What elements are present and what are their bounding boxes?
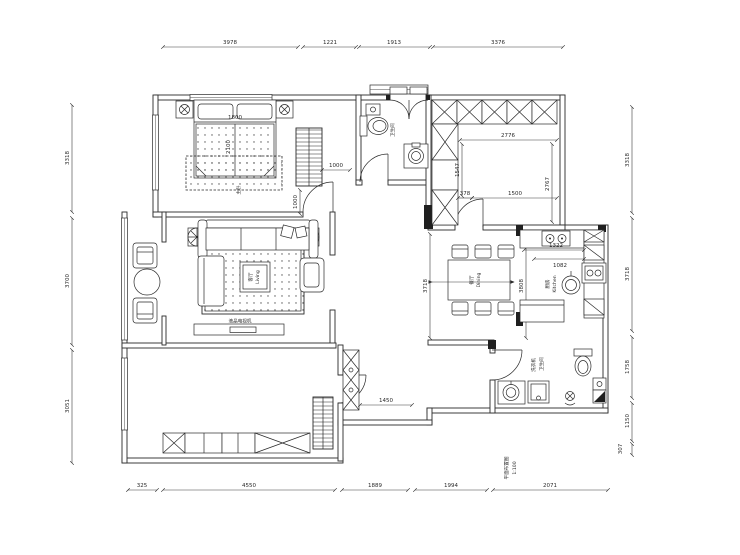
dim-bottom-2: 4550	[242, 483, 256, 489]
dim-left-1: 3318	[65, 151, 71, 165]
master-wardrobe	[296, 128, 322, 186]
dim-right-2: 3718	[625, 267, 631, 281]
bed-length-dim: 2100	[226, 140, 232, 154]
dim-top-4: 3376	[491, 40, 505, 46]
dim-top-2: 1221	[323, 40, 337, 46]
kitchen-label-cn: 厨房	[544, 279, 551, 289]
washing-machine	[528, 381, 549, 403]
armchair-right	[300, 258, 324, 292]
washbasin-top	[404, 143, 428, 168]
laundry-label: 洗衣机	[530, 358, 537, 372]
dim-2767: 2767	[545, 177, 551, 191]
balcony	[133, 243, 160, 323]
wardrobe-row-top	[432, 100, 557, 124]
dim-dining-height: 3718	[423, 279, 429, 293]
cabinet-row-bottom	[163, 433, 310, 453]
bathroom-cabinet	[366, 104, 380, 115]
dim-378: 378	[460, 191, 471, 197]
dining-label-cn: 餐厅	[468, 275, 475, 285]
master-bedroom-door	[303, 182, 333, 212]
dim-kitchen-a: 1322	[549, 243, 563, 249]
rattan-chair-1	[133, 243, 157, 268]
living-room: 客厅 Living 液晶电视机	[188, 220, 324, 335]
caption-scale: 1:100	[512, 461, 518, 474]
bathroom-bottom-door	[492, 350, 522, 380]
washbasin-bottom	[498, 381, 525, 404]
window-bedroom2	[122, 358, 128, 430]
hallway: 1450	[343, 350, 412, 410]
coffee-table: 客厅 Living	[240, 262, 270, 292]
bathroom-top-label: 卫生间	[389, 123, 396, 137]
bedroom-rug	[186, 156, 282, 190]
dim-right-4: 1150	[625, 414, 631, 428]
dim-right-3: 1758	[625, 360, 631, 374]
bathroom-bottom: 卫生间 洗衣机	[498, 349, 606, 405]
dim-top-1: 3978	[223, 40, 237, 46]
dim-bottom-5: 2071	[543, 483, 557, 489]
toilet-top	[360, 116, 388, 136]
living-room-label-en: Living	[255, 270, 261, 284]
dimension-chain-bottom: 325 4550 1889 1994 2071	[128, 483, 608, 490]
dim-right-1: 3318	[625, 153, 631, 167]
bathroom-bottom-label: 卫生间	[538, 357, 545, 371]
kitchen-label-en: Kitchen	[552, 275, 558, 292]
dimension-chain-top: 3978 1221 1913 3376	[163, 40, 563, 47]
wardrobe-depth-dim: 1000	[293, 195, 299, 209]
living-room-label-cn: 客厅	[247, 272, 254, 282]
tv-cabinet: 液晶电视机	[194, 318, 284, 336]
bathroom-top-door	[360, 154, 388, 182]
window-master-top	[190, 95, 272, 101]
tv-label: 液晶电视机	[229, 318, 252, 325]
kitchen-counter-bottom	[520, 300, 564, 322]
rattan-chair-2	[133, 298, 157, 323]
dim-left-2: 3700	[65, 274, 71, 288]
bathroom-top: 卫生间	[360, 104, 428, 168]
dim-1547: 1547	[455, 163, 461, 177]
kitchen-appliance-column	[582, 230, 606, 318]
floor-plan-page: 1800 2100 主卧 1000 1000 卫生间	[0, 0, 740, 555]
dim-1500: 1500	[508, 191, 522, 197]
shower-unit	[593, 378, 606, 403]
toilet-bottom	[574, 349, 592, 376]
caption-title: 平面布置图	[503, 456, 510, 479]
dimension-chain-left: 3318 3700 3051	[65, 105, 72, 463]
dim-hall: 1450	[379, 398, 393, 404]
structural-columns	[386, 95, 606, 349]
dim-2776: 2776	[501, 133, 515, 139]
master-bedroom: 1800 2100 主卧 1000 1000	[176, 100, 350, 214]
wardrobe-bottom-left	[313, 397, 333, 449]
dim-kitchen-b: 1082	[553, 263, 567, 269]
dim-top-3: 1913	[387, 40, 401, 46]
dining-room: 餐厅 Dining 3718 3808	[423, 234, 526, 338]
hall-cabinet-column	[343, 350, 359, 410]
bedroom-top-right: 2776 1547 378 1500 2767	[432, 100, 557, 225]
doors	[303, 85, 522, 403]
bedroom-top-right-door	[455, 199, 483, 227]
wardrobe-width-dim: 1000	[329, 163, 343, 169]
floor-drain	[565, 392, 575, 406]
dim-bottom-1: 325	[137, 483, 148, 489]
nightstand-left	[176, 101, 193, 118]
window-master-left	[153, 115, 159, 190]
dim-kitchen-height: 3808	[519, 279, 525, 293]
dim-bottom-3: 1889	[368, 483, 382, 489]
bedroom-bottom-left	[163, 397, 333, 453]
drawing-caption: 平面布置图 1:100	[503, 456, 518, 479]
dining-table: 餐厅 Dining	[448, 260, 510, 300]
balcony-table	[134, 269, 160, 295]
kitchen-sink	[562, 271, 580, 294]
bed-width-dim: 1800	[228, 115, 242, 121]
dim-left-3: 3051	[65, 399, 71, 413]
nightstand-right	[276, 101, 293, 118]
dining-label-en: Dining	[476, 273, 482, 288]
dim-bottom-4: 1994	[444, 483, 458, 489]
kitchen: 1322 1082 厨房 Kitchen	[520, 230, 606, 322]
dimension-chain-right: 3318 3718 1758 1150 307	[618, 107, 632, 455]
dim-right-5: 307	[618, 443, 624, 454]
window-balcony	[122, 218, 128, 340]
floor-plan-canvas: 1800 2100 主卧 1000 1000 卫生间	[0, 0, 740, 555]
